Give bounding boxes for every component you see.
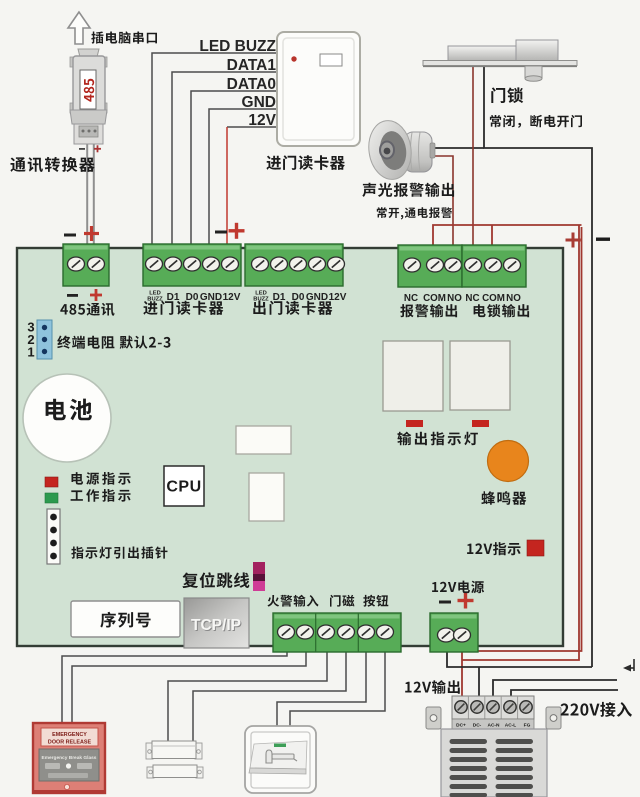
svg-text:DATA0: DATA0 — [227, 76, 276, 93]
svg-text:GND: GND — [200, 292, 222, 303]
svg-text:GND: GND — [242, 94, 276, 111]
svg-text:D0: D0 — [186, 292, 199, 303]
svg-text:DC-: DC- — [473, 723, 482, 729]
svg-text:FG: FG — [524, 723, 531, 729]
svg-text:12V: 12V — [223, 292, 241, 303]
svg-text:GND: GND — [306, 292, 328, 303]
svg-text:EMERGENCY: EMERGENCY — [52, 732, 87, 738]
svg-text:LED BUZZ: LED BUZZ — [199, 38, 276, 55]
svg-text:Emergency Break Glass: Emergency Break Glass — [42, 755, 97, 761]
svg-text:1: 1 — [27, 345, 34, 360]
svg-text:D0: D0 — [292, 292, 305, 303]
svg-text:12V: 12V — [329, 292, 347, 303]
svg-text:CPU: CPU — [166, 479, 201, 496]
svg-text:DOOR RELEASE: DOOR RELEASE — [48, 740, 92, 746]
svg-text:COM: COM — [423, 293, 446, 304]
svg-text:AC-L: AC-L — [505, 723, 517, 729]
svg-text:NO: NO — [506, 293, 521, 304]
svg-text:NC: NC — [465, 293, 479, 304]
svg-text:DC+: DC+ — [456, 723, 466, 729]
svg-text:COM: COM — [482, 293, 505, 304]
svg-text:12V: 12V — [248, 112, 276, 129]
svg-text:DATA1: DATA1 — [227, 57, 277, 74]
svg-text:BUZZ: BUZZ — [253, 297, 269, 303]
svg-text:NO: NO — [447, 293, 462, 304]
svg-text:NC: NC — [404, 293, 418, 304]
svg-text:AC-N: AC-N — [488, 723, 501, 729]
svg-text:TCP/IP: TCP/IP — [191, 617, 241, 634]
